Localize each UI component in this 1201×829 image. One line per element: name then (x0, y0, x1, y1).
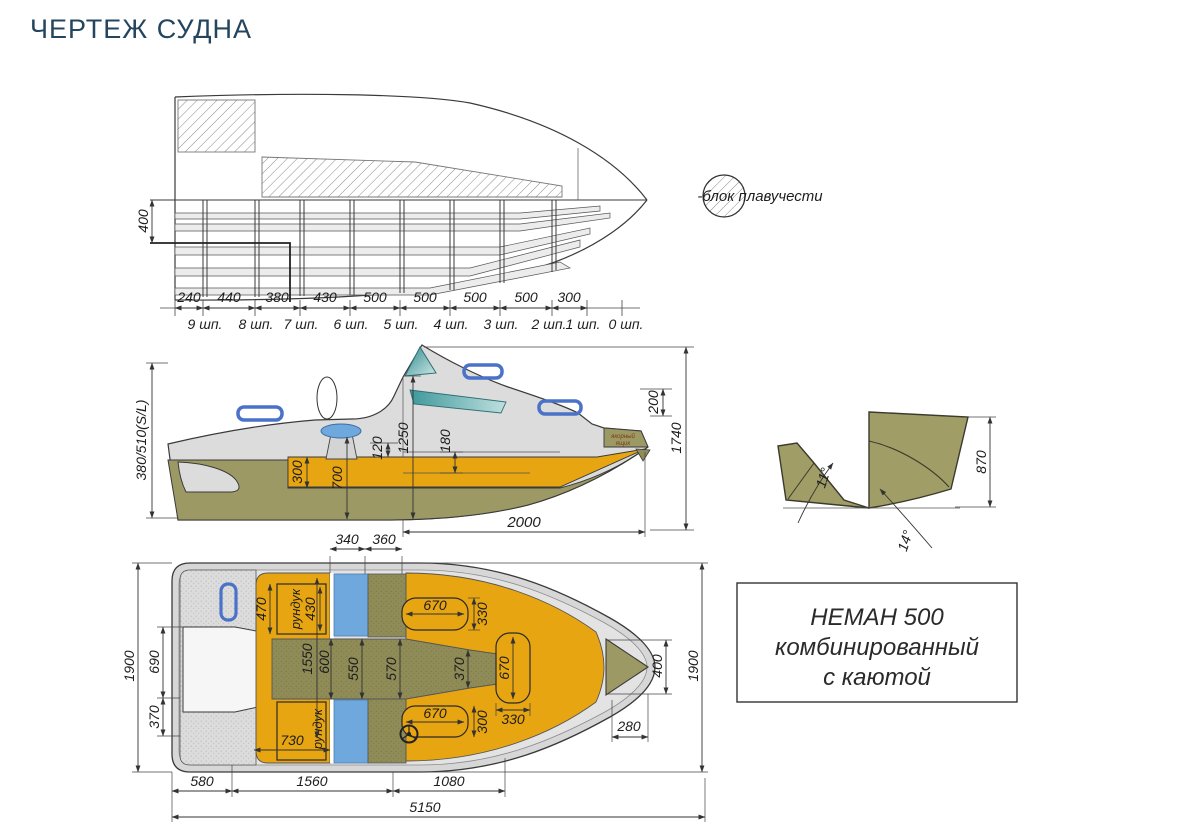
dim-1560: 1560 (296, 773, 327, 789)
grab-rail-aft (238, 407, 282, 420)
passage-top (368, 574, 406, 637)
model-cabin: с каютой (823, 664, 931, 691)
dim-570: 570 (383, 657, 399, 681)
dim-360: 360 (372, 531, 396, 547)
dim-1900-right: 1900 (685, 650, 701, 681)
dim-400: 400 (649, 654, 665, 678)
dim-670-top: 670 (423, 597, 447, 613)
dim-470: 470 (253, 597, 269, 621)
anchor-box-label-1: якорный (610, 433, 635, 440)
frame-label: 3 шп. (484, 316, 519, 332)
spacing-label: 300 (557, 289, 581, 305)
stem-foot (636, 449, 650, 461)
boat-drawing-canvas: 400 (0, 0, 1201, 829)
frame-label: 7 шп. (284, 316, 319, 332)
dim-1900-left: 1900 (121, 650, 137, 681)
title-block: НЕМАН 500 комбинированный с каютой (737, 583, 1017, 702)
dim-280: 280 (616, 718, 641, 734)
frame-label: 8 шп. (239, 316, 274, 332)
dim-300-bottom: 300 (474, 710, 490, 734)
structural-profile-view: 400 (135, 94, 647, 332)
dim-400-label: 400 (135, 209, 151, 233)
dim-370-left: 370 (146, 705, 162, 729)
seat-bottom (334, 700, 368, 763)
dim-670-forward: 670 (496, 656, 512, 680)
side-view: якорный ящик 380/510(S/L) 300 700 120 12… (133, 345, 694, 537)
dim-700: 700 (329, 466, 345, 490)
spacing-label: 500 (463, 289, 487, 305)
dim-430: 430 (302, 597, 318, 621)
drawing-page: ЧЕРТЕЖ СУДНА (0, 0, 1201, 829)
table-top (321, 424, 361, 438)
mast-light (317, 377, 337, 419)
dim-580: 580 (190, 773, 214, 789)
dim-180: 180 (437, 429, 453, 453)
dim-120: 120 (369, 436, 385, 460)
spacing-label: 440 (217, 289, 241, 305)
dim-freeboard: 380/510(S/L) (133, 400, 149, 481)
model-type: комбинированный (775, 634, 979, 661)
dim-2000: 2000 (506, 514, 541, 531)
frame-label: 0 шп. (609, 316, 644, 332)
frame-label: 2 шп. (531, 316, 567, 332)
dim-600: 600 (316, 650, 332, 674)
frame-label: 1 шп. (566, 316, 601, 332)
spacing-label: 500 (514, 289, 538, 305)
legend-label: -блок плавучести (697, 188, 823, 205)
anchor-box-label-2: ящик (615, 441, 632, 447)
buoyancy-block-stern (178, 100, 255, 152)
dim-1740: 1740 (668, 422, 684, 453)
seat-top (334, 574, 368, 636)
dim-330-forward: 330 (501, 711, 525, 727)
dim-1250: 1250 (395, 422, 411, 453)
dim-870: 870 (973, 450, 989, 474)
dim-670-bottom: 670 (423, 705, 447, 721)
dim-550: 550 (345, 657, 361, 681)
spacing-label: 430 (313, 289, 337, 305)
dim-370-center: 370 (451, 657, 467, 681)
frame-label: 5 шп. (384, 316, 419, 332)
seat-gap-top (330, 573, 334, 639)
locker-bottom-label: рундук (310, 708, 325, 750)
spacing-label: 240 (176, 289, 201, 305)
stringers (175, 206, 610, 295)
buoyancy-block-side (262, 157, 562, 197)
spacing-label: 500 (363, 289, 387, 305)
dim-300: 300 (289, 460, 305, 484)
dim-340: 340 (335, 531, 359, 547)
frame-label: 6 шп. (334, 316, 369, 332)
dim-730: 730 (280, 732, 304, 748)
dim-200: 200 (645, 390, 661, 415)
transom-section-view: 11° 14° 870 (778, 412, 996, 553)
plan-view: 340 360 470 рундук 430 рундук 730 1550 6… (121, 531, 708, 822)
dim-400: 400 (135, 200, 152, 243)
model-name: НЕМАН 500 (810, 604, 944, 631)
frame-spacing-dims: 240 440 380 430 500 500 500 500 300 9 шп… (160, 289, 643, 332)
dim-1080: 1080 (433, 773, 464, 789)
angle-14-label: 14° (894, 528, 916, 553)
spacing-label: 380 (265, 289, 289, 305)
dim-330-top: 330 (474, 602, 490, 626)
dim-1550: 1550 (299, 643, 315, 674)
dim-5150: 5150 (409, 799, 440, 815)
seat-gap-bottom (330, 697, 334, 763)
dim-690: 690 (146, 650, 162, 674)
frame-label: 4 шп. (434, 316, 469, 332)
frame-label: 9 шп. (188, 316, 223, 332)
spacing-label: 500 (413, 289, 437, 305)
legend: -блок плавучести (697, 175, 823, 217)
locker-top-label: рундук (288, 588, 303, 630)
